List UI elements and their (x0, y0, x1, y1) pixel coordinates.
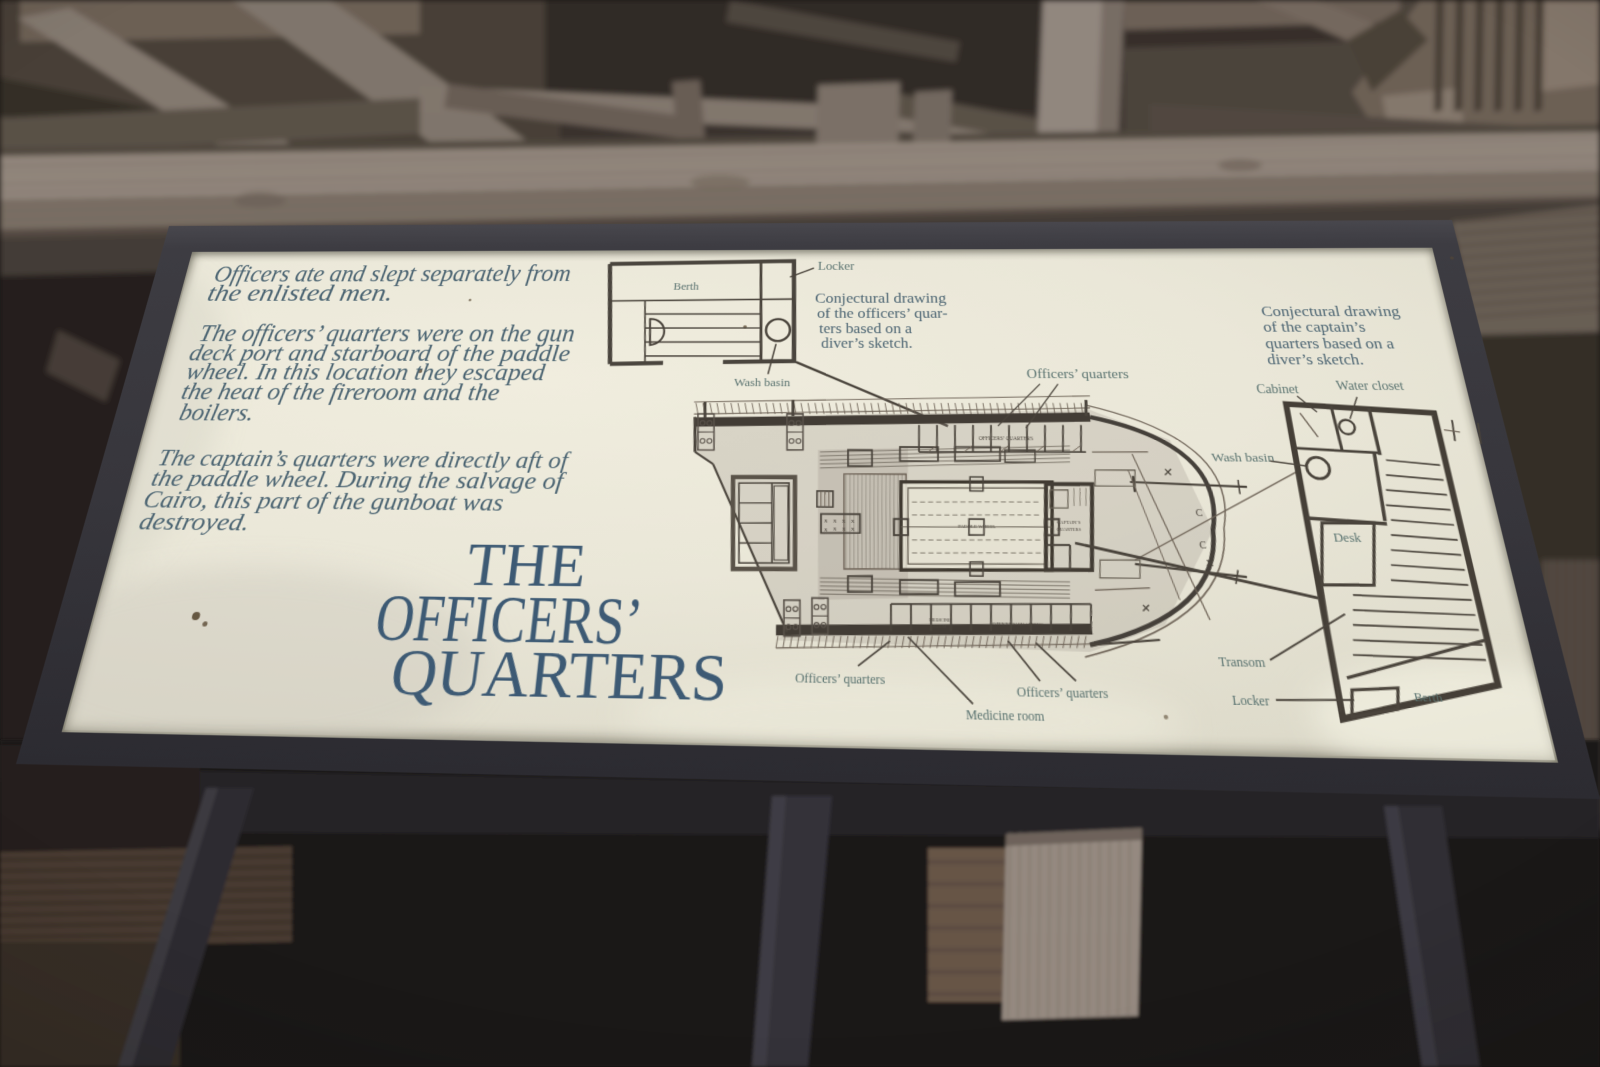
svg-text:destroyed.: destroyed. (136, 509, 252, 536)
svg-text:Conjectural drawing: Conjectural drawing (1260, 303, 1402, 319)
svg-text:Transom: Transom (1218, 656, 1268, 671)
svg-text:Conjectural drawing: Conjectural drawing (815, 290, 947, 306)
svg-text:PADDLE WHEEL: PADDLE WHEEL (958, 524, 997, 529)
svg-text:the enlisted men.: the enlisted men. (204, 280, 395, 307)
svg-text:Locker: Locker (1231, 693, 1270, 708)
svg-text:Berth: Berth (673, 282, 699, 293)
svg-text:x: x (833, 518, 837, 526)
svg-text:Locker: Locker (818, 261, 855, 273)
svg-text:x: x (851, 526, 855, 534)
svg-text:Officers’ quarters: Officers’ quarters (1016, 684, 1109, 701)
svg-text:OFFICERS’ QUARTERS: OFFICERS’ QUARTERS (992, 622, 1043, 628)
svg-text:x: x (842, 526, 846, 534)
svg-text:MEDICINE: MEDICINE (929, 618, 951, 624)
svg-text:boilers.: boilers. (177, 399, 258, 426)
svg-text:quarters based on a: quarters based on a (1264, 335, 1396, 352)
svg-text:Desk: Desk (1332, 531, 1362, 546)
svg-text:C: C (1195, 507, 1203, 519)
svg-text:x: x (824, 526, 828, 534)
svg-text:CAPTAIN’S: CAPTAIN’S (1057, 520, 1081, 525)
svg-text:Cabinet: Cabinet (1255, 383, 1300, 397)
svg-text:x: x (833, 526, 837, 534)
svg-text:of the officers’ quar-: of the officers’ quar- (817, 305, 948, 321)
svg-text:diver’s sketch.: diver’s sketch. (821, 335, 913, 352)
svg-text:C: C (1199, 540, 1207, 552)
svg-text:Medicine room: Medicine room (966, 707, 1045, 723)
svg-text:x: x (851, 518, 855, 526)
svg-text:Wash basin: Wash basin (1211, 451, 1277, 465)
svg-text:Berth: Berth (1413, 690, 1445, 705)
svg-text:Water closet: Water closet (1335, 380, 1405, 394)
svg-text:x: x (824, 518, 828, 526)
svg-text:x: x (842, 518, 846, 526)
svg-text:Wash basin: Wash basin (734, 377, 790, 390)
svg-text:QUARTERS: QUARTERS (386, 634, 729, 716)
svg-text:ROOM: ROOM (933, 624, 947, 630)
svg-text:diver’s sketch.: diver’s sketch. (1266, 350, 1365, 367)
svg-text:Officers’ quarters: Officers’ quarters (795, 671, 886, 688)
svg-text:OFFICERS’ QUARTERS: OFFICERS’ QUARTERS (979, 435, 1035, 441)
svg-text:of the captain’s: of the captain’s (1262, 319, 1367, 336)
svg-text:Officers’ quarters: Officers’ quarters (1026, 367, 1130, 382)
svg-text:QUARTERS: QUARTERS (1057, 527, 1082, 532)
